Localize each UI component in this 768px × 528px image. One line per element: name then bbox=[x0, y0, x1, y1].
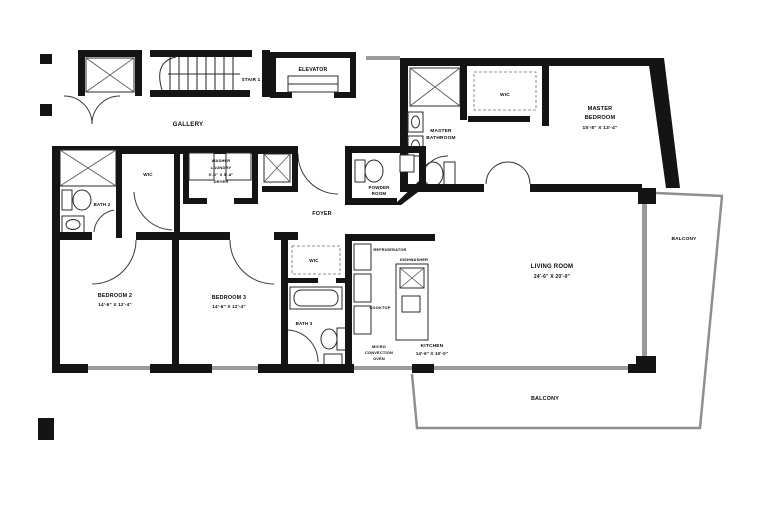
refrigerator-label: REFRIGERATOR bbox=[373, 247, 406, 252]
living-room-dims: 24'-6" X 20'-0" bbox=[534, 274, 571, 280]
wall-post bbox=[638, 188, 656, 204]
gallery-label: GALLERY bbox=[173, 121, 204, 128]
wall-stub bbox=[38, 418, 54, 440]
wall bbox=[55, 232, 92, 240]
sink bbox=[408, 112, 423, 132]
elevator-label: ELEVATOR bbox=[299, 67, 328, 73]
wall bbox=[78, 50, 85, 96]
foyer-label: FOYER bbox=[312, 211, 332, 217]
balcony-outline bbox=[412, 193, 722, 428]
toilet-bowl bbox=[321, 329, 337, 349]
bedroom3-dims: 14'-6" X 12'-4" bbox=[212, 304, 246, 309]
wall bbox=[116, 146, 122, 238]
master-bedroom-dims: 15'-8" X 13'-4" bbox=[583, 125, 618, 131]
bath3: BATH 3 bbox=[288, 287, 346, 369]
micro-label: MICRO bbox=[372, 344, 386, 349]
bedroom2-dims: 14'-6" X 12'-4" bbox=[98, 302, 132, 307]
wall bbox=[400, 58, 652, 66]
stair-label: STAIR 1 bbox=[242, 77, 261, 82]
powder-room: POWDER ROOM bbox=[345, 146, 426, 205]
door-arc bbox=[92, 96, 120, 124]
bedroom3-door-arc bbox=[230, 240, 274, 284]
door-arc bbox=[288, 330, 318, 362]
toilet-tank bbox=[444, 162, 455, 186]
toilet-tank bbox=[337, 328, 346, 350]
wall bbox=[135, 50, 142, 96]
master-bath-label: MASTER bbox=[430, 128, 452, 134]
wall bbox=[262, 50, 270, 97]
exterior-wall-left bbox=[52, 146, 60, 373]
laundry-closet: WASHER LAUNDRY 5'-0" X 5'-8" DRYER bbox=[183, 146, 258, 204]
refrigerator-box bbox=[354, 244, 371, 270]
wic-label: WIC bbox=[143, 172, 153, 177]
south-wall bbox=[52, 364, 656, 373]
sink bbox=[62, 216, 84, 233]
wall bbox=[274, 232, 298, 240]
gallery-corridor: STAIR 1 ELEVATOR GALLERY bbox=[40, 50, 400, 128]
floor-plan-page: STAIR 1 ELEVATOR GALLERY bbox=[0, 0, 768, 528]
entry-door-arc bbox=[298, 154, 338, 194]
micro-label: CONVECTION bbox=[365, 350, 393, 355]
bedroom2-door-arc bbox=[92, 240, 136, 284]
door-arc bbox=[64, 96, 92, 124]
cooktop-box bbox=[402, 296, 420, 312]
wall bbox=[174, 146, 180, 238]
bath2-label: BATH 2 bbox=[94, 202, 111, 207]
bedroom3-label: BEDROOM 3 bbox=[212, 295, 246, 301]
laundry-label: DRYER bbox=[214, 179, 229, 184]
door-arc bbox=[134, 192, 172, 230]
laundry-label: LAUNDRY bbox=[211, 165, 232, 170]
master-wic-label: WIC bbox=[500, 92, 510, 98]
hall-wic: WIC bbox=[134, 146, 180, 238]
bedroom2-label: BEDROOM 2 bbox=[98, 293, 132, 299]
kitchen: REFRIGERATOR DISHWASHER COOKTOP MICRO CO… bbox=[345, 234, 448, 372]
wall bbox=[78, 50, 142, 57]
cabinet bbox=[354, 274, 371, 302]
wall bbox=[468, 116, 530, 122]
cabinet bbox=[354, 306, 371, 334]
laundry-dims: 5'-0" X 5'-8" bbox=[209, 172, 234, 177]
wall bbox=[281, 240, 288, 372]
wall bbox=[136, 232, 230, 240]
living-room-label: LIVING ROOM bbox=[531, 264, 574, 270]
kitchen-dims: 14'-6" X 10'-0" bbox=[416, 351, 448, 356]
micro-label: OVEN bbox=[373, 356, 385, 361]
master-suite: MASTER BATHROOM WIC MASTER BEDROOM 15'-8… bbox=[400, 58, 680, 192]
corridor-glass bbox=[366, 56, 400, 60]
closet-dashed bbox=[474, 72, 536, 110]
wic3-label: WIC bbox=[309, 258, 319, 263]
laundry-label: WASHER bbox=[212, 158, 231, 163]
toilet-tank bbox=[62, 190, 72, 210]
bath2: BATH 2 bbox=[60, 146, 122, 238]
powder-room-label: ROOM bbox=[372, 191, 387, 196]
wall-stub bbox=[40, 54, 52, 64]
slanted-exterior-wall bbox=[648, 58, 680, 188]
master-bath-label: BATHROOM bbox=[426, 135, 456, 141]
bathtub-inner bbox=[294, 290, 338, 306]
balcony-right-label: BALCONY bbox=[671, 236, 697, 242]
cooktop-label: COOKTOP bbox=[370, 305, 391, 310]
wall bbox=[530, 184, 642, 192]
door-arc bbox=[94, 210, 114, 232]
window-glass bbox=[642, 204, 647, 356]
kitchen-label: KITCHEN bbox=[421, 343, 444, 349]
toilet-bowl bbox=[365, 160, 383, 182]
bedroom-divider-wall bbox=[172, 240, 179, 372]
wic3: WIC bbox=[288, 246, 346, 283]
elevator bbox=[270, 52, 356, 98]
master-bedroom-label: MASTER bbox=[588, 106, 613, 112]
toilet-bowl bbox=[73, 190, 91, 210]
sink bbox=[400, 155, 414, 172]
wall bbox=[542, 66, 549, 126]
double-door-arc bbox=[486, 162, 508, 184]
toilet-tank bbox=[355, 160, 365, 182]
stair bbox=[150, 50, 252, 97]
powder-room-label: POWDER bbox=[369, 185, 391, 190]
floor-plan-canvas: STAIR 1 ELEVATOR GALLERY bbox=[0, 0, 768, 528]
bath3-label: BATH 3 bbox=[296, 321, 313, 326]
dishwasher-label: DISHWASHER bbox=[400, 257, 428, 262]
balcony-bottom-label: BALCONY bbox=[531, 396, 559, 402]
wall-stub bbox=[40, 104, 52, 116]
double-door-arc bbox=[508, 162, 530, 184]
master-bedroom-label: BEDROOM bbox=[585, 115, 616, 121]
wall bbox=[460, 66, 467, 120]
